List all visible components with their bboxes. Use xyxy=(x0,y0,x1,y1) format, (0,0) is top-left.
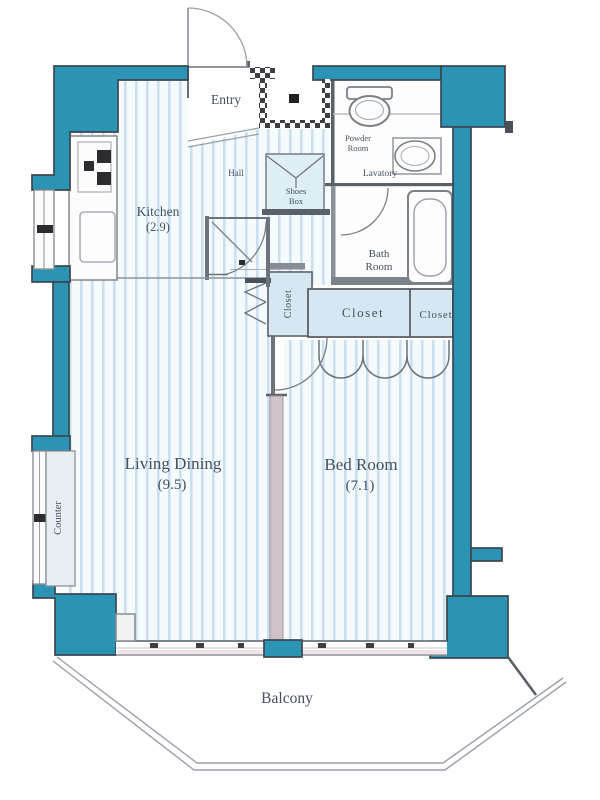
svg-text:Hall: Hall xyxy=(228,168,244,178)
svg-text:Living Dining: Living Dining xyxy=(125,454,222,473)
svg-text:Room: Room xyxy=(348,143,369,153)
svg-text:(9.5): (9.5) xyxy=(158,477,187,493)
svg-text:(2.9): (2.9) xyxy=(146,220,170,234)
svg-text:Entry: Entry xyxy=(211,92,241,107)
svg-text:Room: Room xyxy=(366,261,393,273)
svg-text:Closet: Closet xyxy=(283,290,294,319)
svg-text:Counter: Counter xyxy=(53,501,64,535)
svg-text:Kitchen: Kitchen xyxy=(137,204,180,219)
svg-text:Bed Room: Bed Room xyxy=(324,455,397,474)
svg-text:Closet: Closet xyxy=(420,309,453,321)
svg-text:Shoes: Shoes xyxy=(286,186,306,196)
svg-text:Balcony: Balcony xyxy=(261,690,313,707)
svg-text:Powder: Powder xyxy=(345,133,371,143)
svg-text:(7.1): (7.1) xyxy=(346,478,375,494)
svg-text:Box: Box xyxy=(289,196,304,206)
svg-text:Bath: Bath xyxy=(369,248,390,260)
svg-text:Lavatory: Lavatory xyxy=(363,169,398,179)
svg-text:Closet: Closet xyxy=(342,305,384,320)
